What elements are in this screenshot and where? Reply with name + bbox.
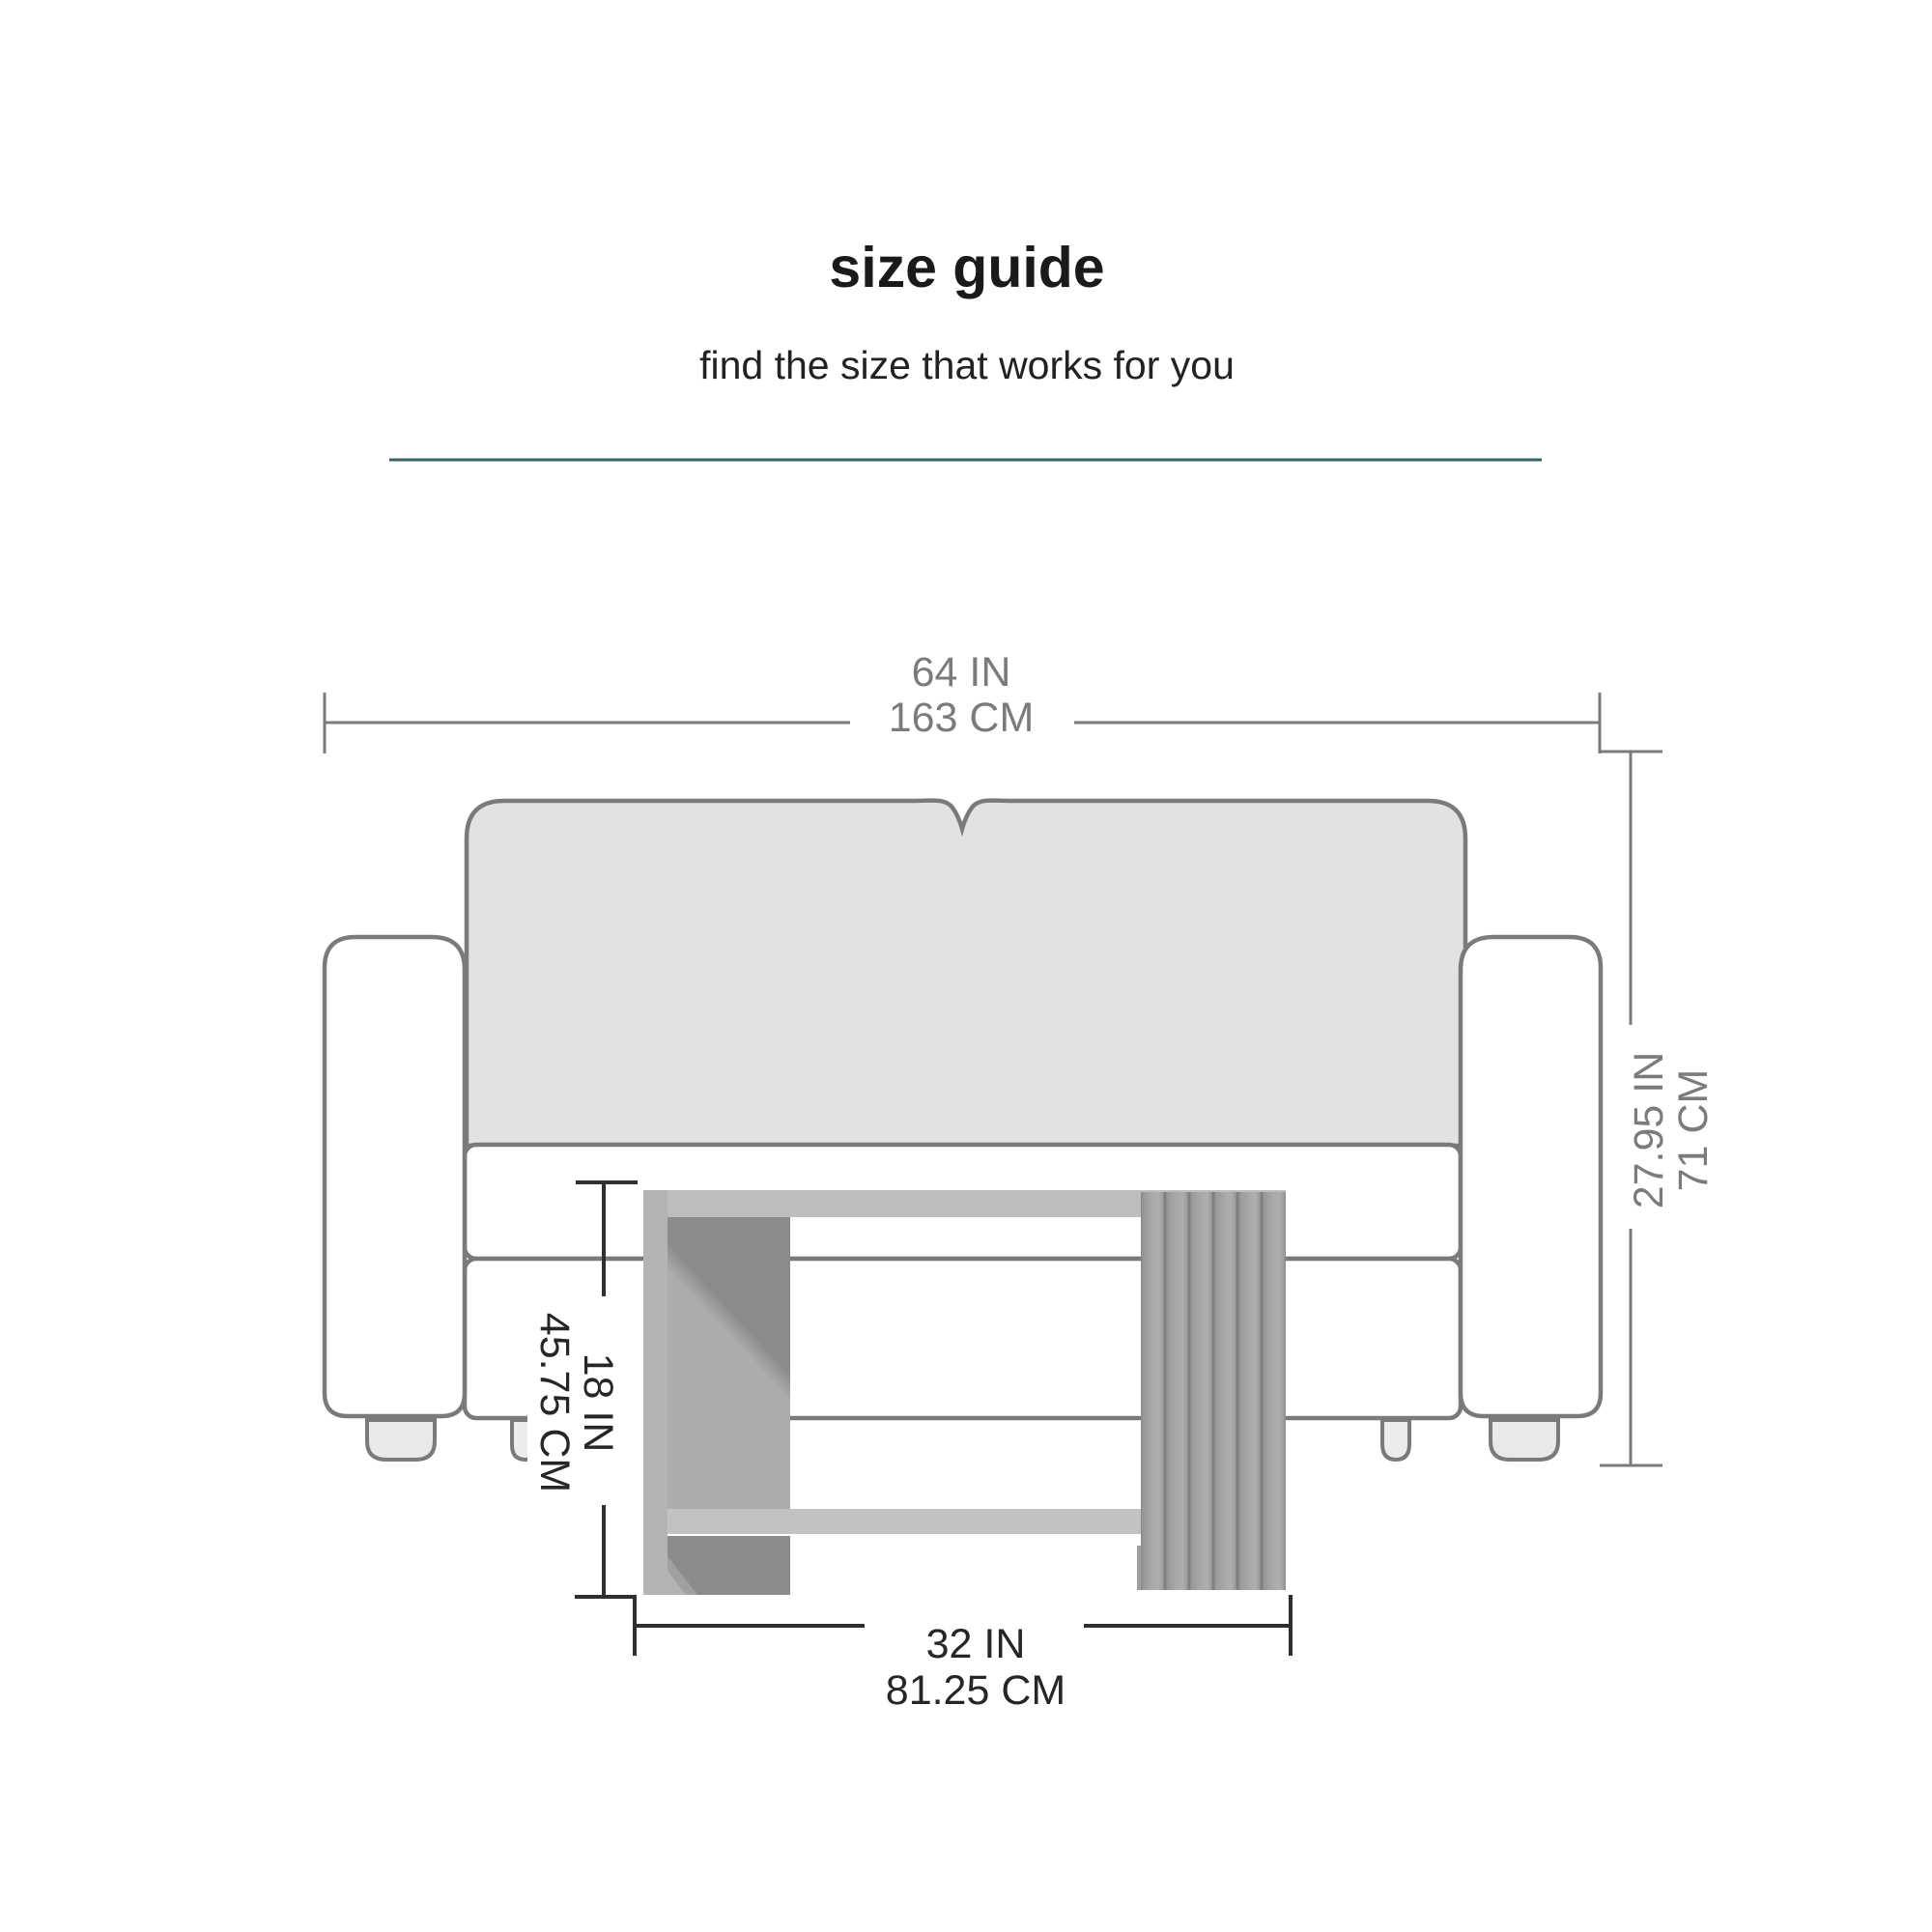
svg-text:18 IN: 18 IN [575,1353,621,1453]
svg-text:27.95 IN: 27.95 IN [1626,1052,1672,1209]
svg-text:64 IN: 64 IN [912,649,1011,696]
svg-text:71 CM: 71 CM [1670,1069,1717,1192]
svg-text:45.75 CM: 45.75 CM [531,1313,578,1492]
svg-text:81.25 CM: 81.25 CM [886,1667,1065,1714]
svg-text:163 CM: 163 CM [889,695,1035,741]
svg-text:32 IN: 32 IN [926,1621,1026,1667]
svg-text:size guide: size guide [829,236,1104,299]
svg-text:find the size that works for y: find the size that works for you [699,343,1235,387]
